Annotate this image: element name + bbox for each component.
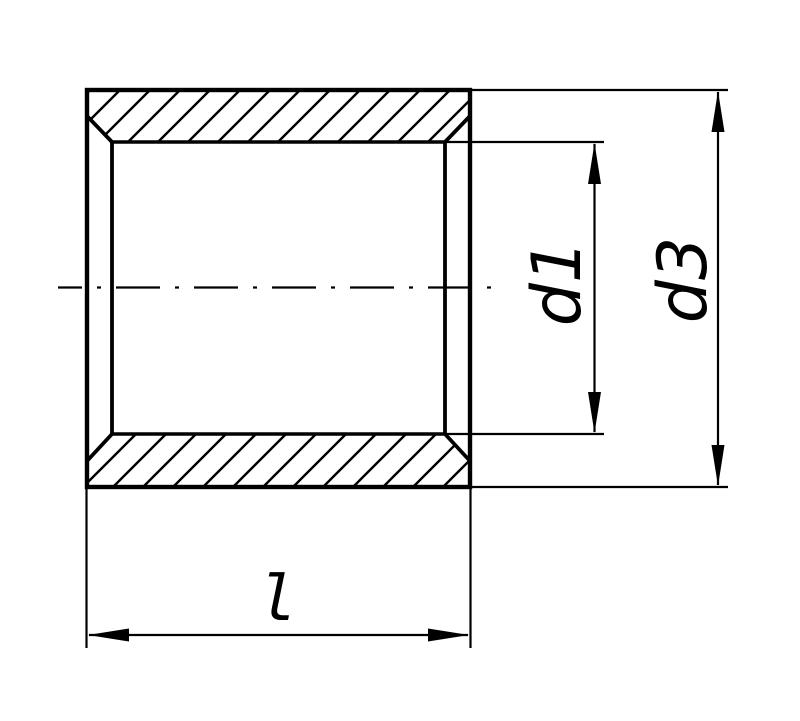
- bottom-wall-hatch-area: [87, 434, 470, 487]
- l-label: l: [259, 562, 296, 635]
- bushing-section-drawing: d1 d3 l: [0, 0, 800, 721]
- d1-label: d1: [518, 240, 597, 326]
- top-wall-hatch-area: [87, 90, 470, 142]
- d3-label: d3: [644, 237, 723, 323]
- technical-drawing-canvas: d1 d3 l: [0, 0, 800, 721]
